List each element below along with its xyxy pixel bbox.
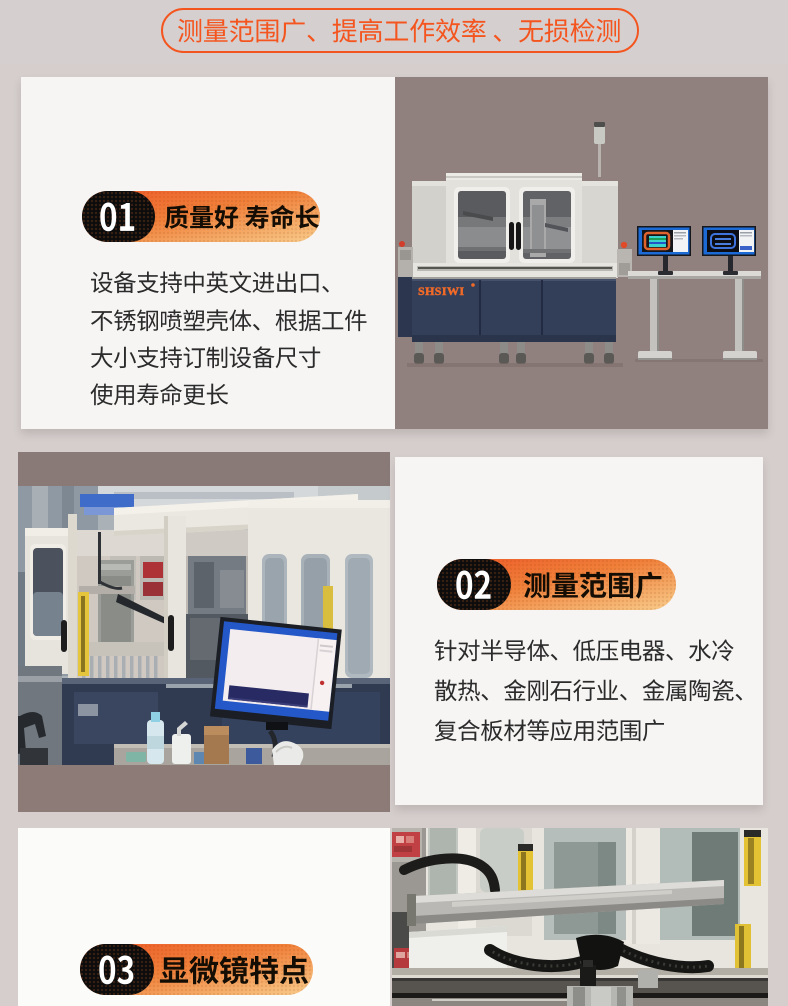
svg-text:SHSIWI: SHSIWI bbox=[418, 284, 464, 298]
